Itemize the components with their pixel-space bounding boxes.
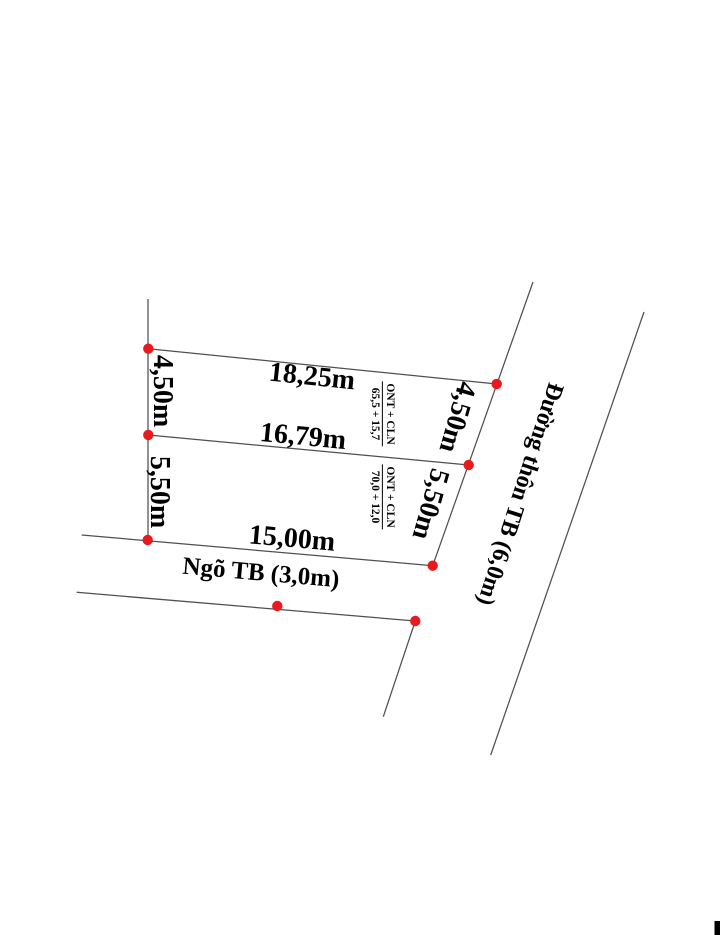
survey-point-dot bbox=[143, 535, 153, 545]
parcel1-area-split: 65,5 + 15,7 bbox=[367, 381, 381, 446]
road-left-line-lower bbox=[383, 621, 415, 717]
survey-point-dot bbox=[143, 344, 153, 354]
survey-point-dot bbox=[143, 430, 153, 440]
survey-point-dot bbox=[272, 601, 282, 611]
survey-point-dot bbox=[464, 460, 474, 470]
edge-artifact-mark bbox=[715, 921, 720, 935]
survey-point-dot bbox=[410, 616, 420, 626]
dim-parcel2-rear: 15,00m bbox=[248, 521, 336, 556]
parcel2-landuse-code: ONT + CLN bbox=[382, 464, 397, 529]
parcel2-landuse-label: ONT + CLN 70,0 + 12,0 bbox=[367, 464, 397, 529]
parcel1-landuse-code: ONT + CLN bbox=[382, 381, 397, 446]
survey-drawing bbox=[0, 0, 720, 935]
survey-point-dot bbox=[492, 379, 502, 389]
alley-lower-line bbox=[77, 592, 416, 621]
survey-point-dot bbox=[428, 561, 438, 571]
dim-parcel2-left: 5,50m bbox=[145, 456, 173, 528]
parcel1-landuse-label: ONT + CLN 65,5 + 15,7 bbox=[367, 381, 397, 446]
land-plot-diagram: 18,25m 16,79m 15,00m 4,50m 5,50m 4,50m 5… bbox=[0, 0, 720, 935]
parcel2-area-split: 70,0 + 12,0 bbox=[367, 464, 381, 529]
dim-parcel1-left: 4,50m bbox=[148, 355, 176, 427]
